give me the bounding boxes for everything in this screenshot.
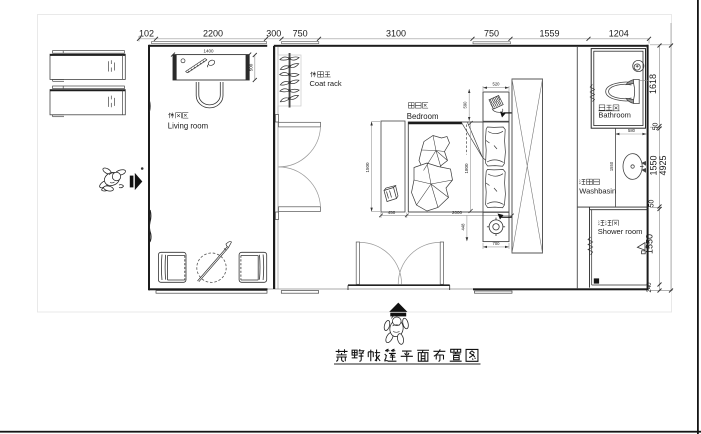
svg-text:4925: 4925	[658, 155, 668, 175]
svg-text:448: 448	[460, 223, 465, 231]
svg-text:1550: 1550	[645, 234, 655, 254]
svg-text:Bedroom: Bedroom	[407, 112, 439, 121]
svg-text:Washbasin: Washbasin	[579, 187, 616, 196]
svg-text:3100: 3100	[386, 29, 406, 39]
svg-text:Coat rack: Coat rack	[310, 79, 342, 88]
svg-text:2000: 2000	[452, 210, 463, 215]
svg-text:Shower room: Shower room	[598, 227, 643, 236]
svg-text:750: 750	[484, 29, 499, 39]
svg-text:1500: 1500	[365, 162, 370, 173]
svg-text:Living room: Living room	[168, 121, 208, 130]
svg-text:700: 700	[493, 241, 501, 246]
svg-text:50: 50	[649, 200, 656, 208]
svg-text:Bathroom: Bathroom	[598, 111, 631, 120]
svg-text:1550: 1550	[649, 155, 659, 175]
svg-text:580: 580	[628, 128, 636, 133]
svg-text:300: 300	[266, 29, 281, 39]
svg-text:520: 520	[493, 82, 501, 87]
svg-text:750: 750	[293, 29, 308, 39]
svg-text:1204: 1204	[609, 29, 629, 39]
svg-text:590: 590	[463, 101, 468, 109]
svg-text:102: 102	[139, 29, 154, 39]
svg-text:450: 450	[388, 210, 396, 215]
svg-text:1550: 1550	[609, 161, 614, 171]
svg-text:2200: 2200	[203, 29, 223, 39]
svg-text:1618: 1618	[648, 74, 658, 94]
svg-text:1800: 1800	[464, 163, 469, 174]
svg-text:50: 50	[653, 123, 660, 131]
svg-text:500: 500	[248, 63, 253, 71]
svg-text:1559: 1559	[539, 29, 559, 39]
svg-text:1400: 1400	[203, 49, 214, 54]
